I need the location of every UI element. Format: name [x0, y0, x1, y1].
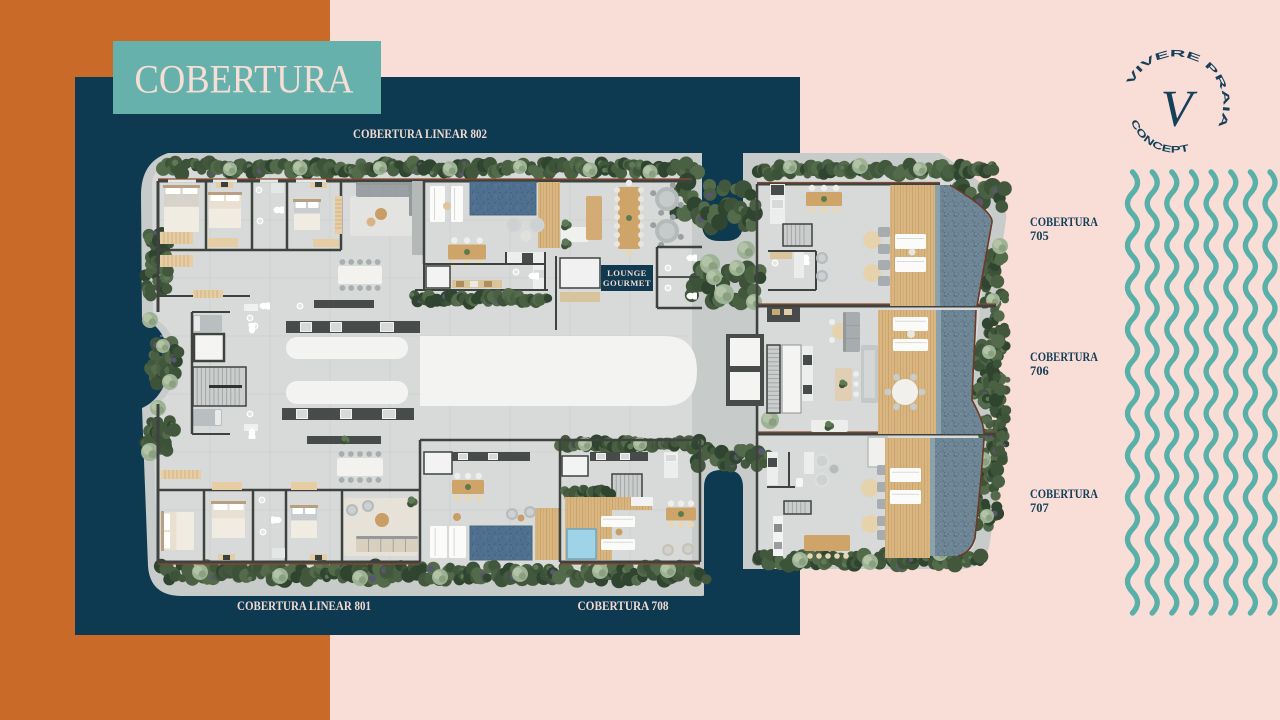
svg-text:COBERTURA: COBERTURA: [1030, 350, 1098, 364]
svg-text:COBERTURA: COBERTURA: [135, 57, 354, 102]
svg-text:COBERTURA LINEAR 802: COBERTURA LINEAR 802: [353, 127, 487, 141]
svg-text:705: 705: [1030, 229, 1049, 243]
svg-text:V: V: [1161, 81, 1198, 138]
svg-text:GOURMET: GOURMET: [603, 278, 651, 288]
svg-text:COBERTURA 708: COBERTURA 708: [578, 599, 669, 613]
svg-text:707: 707: [1030, 501, 1049, 515]
svg-text:COBERTURA: COBERTURA: [1030, 215, 1098, 229]
svg-text:COBERTURA LINEAR 801: COBERTURA LINEAR 801: [237, 599, 371, 613]
svg-text:706: 706: [1030, 364, 1049, 378]
svg-text:LOUNGE: LOUNGE: [607, 268, 647, 278]
svg-text:COBERTURA: COBERTURA: [1030, 487, 1098, 501]
